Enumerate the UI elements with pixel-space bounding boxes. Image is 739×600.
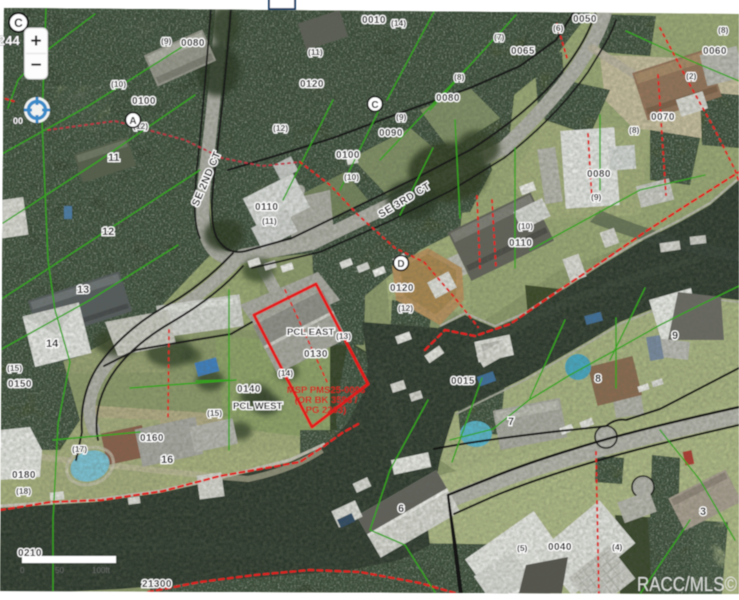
svg-text:(12): (12) [273,123,288,133]
svg-text:0090: 0090 [379,128,403,139]
svg-text:(8): (8) [629,125,640,135]
svg-text:(4): (4) [612,542,623,552]
svg-text:(9): (9) [591,192,602,202]
svg-text:0120: 0120 [390,283,414,294]
svg-text:7: 7 [508,416,514,428]
svg-text:PCL EAST: PCL EAST [287,327,334,338]
svg-text:0150: 0150 [8,379,32,390]
svg-text:12: 12 [102,226,114,238]
svg-text:0180: 0180 [12,470,36,481]
svg-text:0060: 0060 [703,46,727,57]
svg-text:(15): (15) [7,363,22,373]
svg-text:(11): (11) [308,47,323,57]
svg-text:11: 11 [108,152,120,164]
svg-text:(14): (14) [278,368,293,378]
svg-text:(15): (15) [207,408,222,418]
svg-text:0110: 0110 [255,202,278,213]
svg-text:+: + [30,31,41,52]
svg-text:(2): (2) [686,71,697,81]
svg-text:C: C [14,16,23,30]
svg-text:0110: 0110 [509,238,532,249]
svg-text:3: 3 [700,506,706,518]
svg-text:(10): (10) [344,172,359,182]
svg-text:(12): (12) [398,303,413,313]
svg-text:(10): (10) [518,221,533,231]
svg-text:(11): (11) [262,216,277,226]
svg-text:8: 8 [595,373,601,385]
svg-text:(9): (9) [161,36,172,46]
svg-text:0080: 0080 [436,93,460,104]
svg-text:(5): (5) [517,543,528,553]
svg-text:(7): (7) [494,32,505,42]
svg-text:0080: 0080 [181,38,205,49]
svg-text:0140: 0140 [237,384,261,395]
svg-text:(6): (6) [553,23,564,33]
svg-text:0070: 0070 [651,112,675,123]
svg-text:PCL WEST: PCL WEST [233,401,283,412]
svg-text:0080: 0080 [587,169,611,180]
svg-text:00: 00 [13,116,23,126]
svg-text:0010: 0010 [362,15,386,26]
svg-text:(8): (8) [454,72,465,82]
svg-text:−: − [30,55,41,76]
svg-text:PG 2203): PG 2203) [306,405,347,416]
svg-text:244: 244 [0,33,20,48]
svg-text:A: A [129,116,136,127]
svg-text:0100: 0100 [132,96,156,107]
svg-text:(18): (18) [16,486,31,496]
svg-text:0130: 0130 [304,349,328,360]
svg-text:50: 50 [55,566,64,575]
svg-text:(10): (10) [111,79,126,89]
svg-text:21300: 21300 [142,579,172,590]
svg-text:0040: 0040 [548,542,572,553]
svg-text:0100: 0100 [336,150,360,161]
svg-text:C: C [371,100,378,111]
svg-text:16: 16 [161,454,173,466]
svg-text:0: 0 [20,566,25,575]
svg-text:13: 13 [77,284,89,296]
svg-text:(14): (14) [391,18,406,28]
svg-text:0050: 0050 [573,14,597,25]
svg-text:(13): (13) [336,331,351,341]
svg-text:0065: 0065 [511,46,535,57]
svg-text:0120: 0120 [300,79,324,90]
svg-text:D: D [397,259,404,270]
svg-text:(8): (8) [718,25,729,35]
svg-text:100ft: 100ft [92,566,111,575]
svg-text:RACC/MLS©: RACC/MLS© [637,574,737,596]
svg-text:0160: 0160 [140,433,164,444]
svg-text:(17): (17) [72,444,87,454]
svg-text:9: 9 [672,330,678,342]
svg-text:0015: 0015 [451,376,475,387]
svg-text:(9): (9) [396,112,407,122]
svg-text:6: 6 [398,503,404,515]
svg-text:14: 14 [46,338,59,350]
